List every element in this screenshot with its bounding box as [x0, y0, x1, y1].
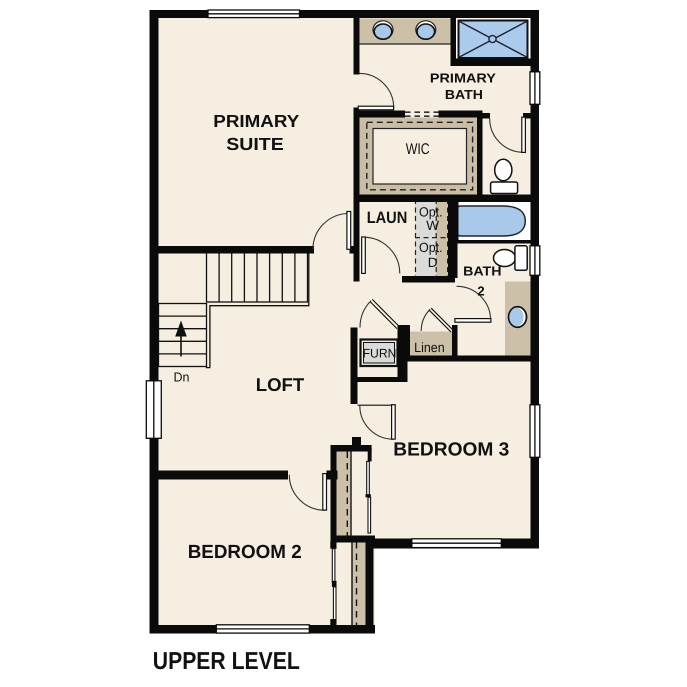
svg-text:BEDROOM 2: BEDROOM 2 — [188, 542, 302, 563]
svg-text:BATH: BATH — [463, 264, 501, 279]
svg-text:LOFT: LOFT — [256, 374, 305, 395]
svg-text:Opt.: Opt. — [419, 240, 443, 255]
svg-text:D: D — [428, 255, 438, 270]
svg-text:BATH: BATH — [445, 87, 483, 102]
svg-text:PRIMARY: PRIMARY — [213, 111, 299, 131]
svg-text:SUITE: SUITE — [226, 134, 284, 154]
svg-text:FURN: FURN — [363, 346, 397, 360]
svg-text:LAUN: LAUN — [367, 209, 408, 227]
svg-text:BEDROOM 3: BEDROOM 3 — [393, 439, 509, 460]
svg-text:Linen: Linen — [414, 340, 445, 355]
svg-text:PRIMARY: PRIMARY — [430, 71, 496, 86]
svg-text:W: W — [426, 218, 439, 233]
svg-text:Dn: Dn — [174, 369, 190, 384]
svg-text:2: 2 — [477, 283, 484, 298]
svg-text:UPPER LEVEL: UPPER LEVEL — [153, 648, 300, 675]
svg-text:WIC: WIC — [406, 141, 430, 158]
